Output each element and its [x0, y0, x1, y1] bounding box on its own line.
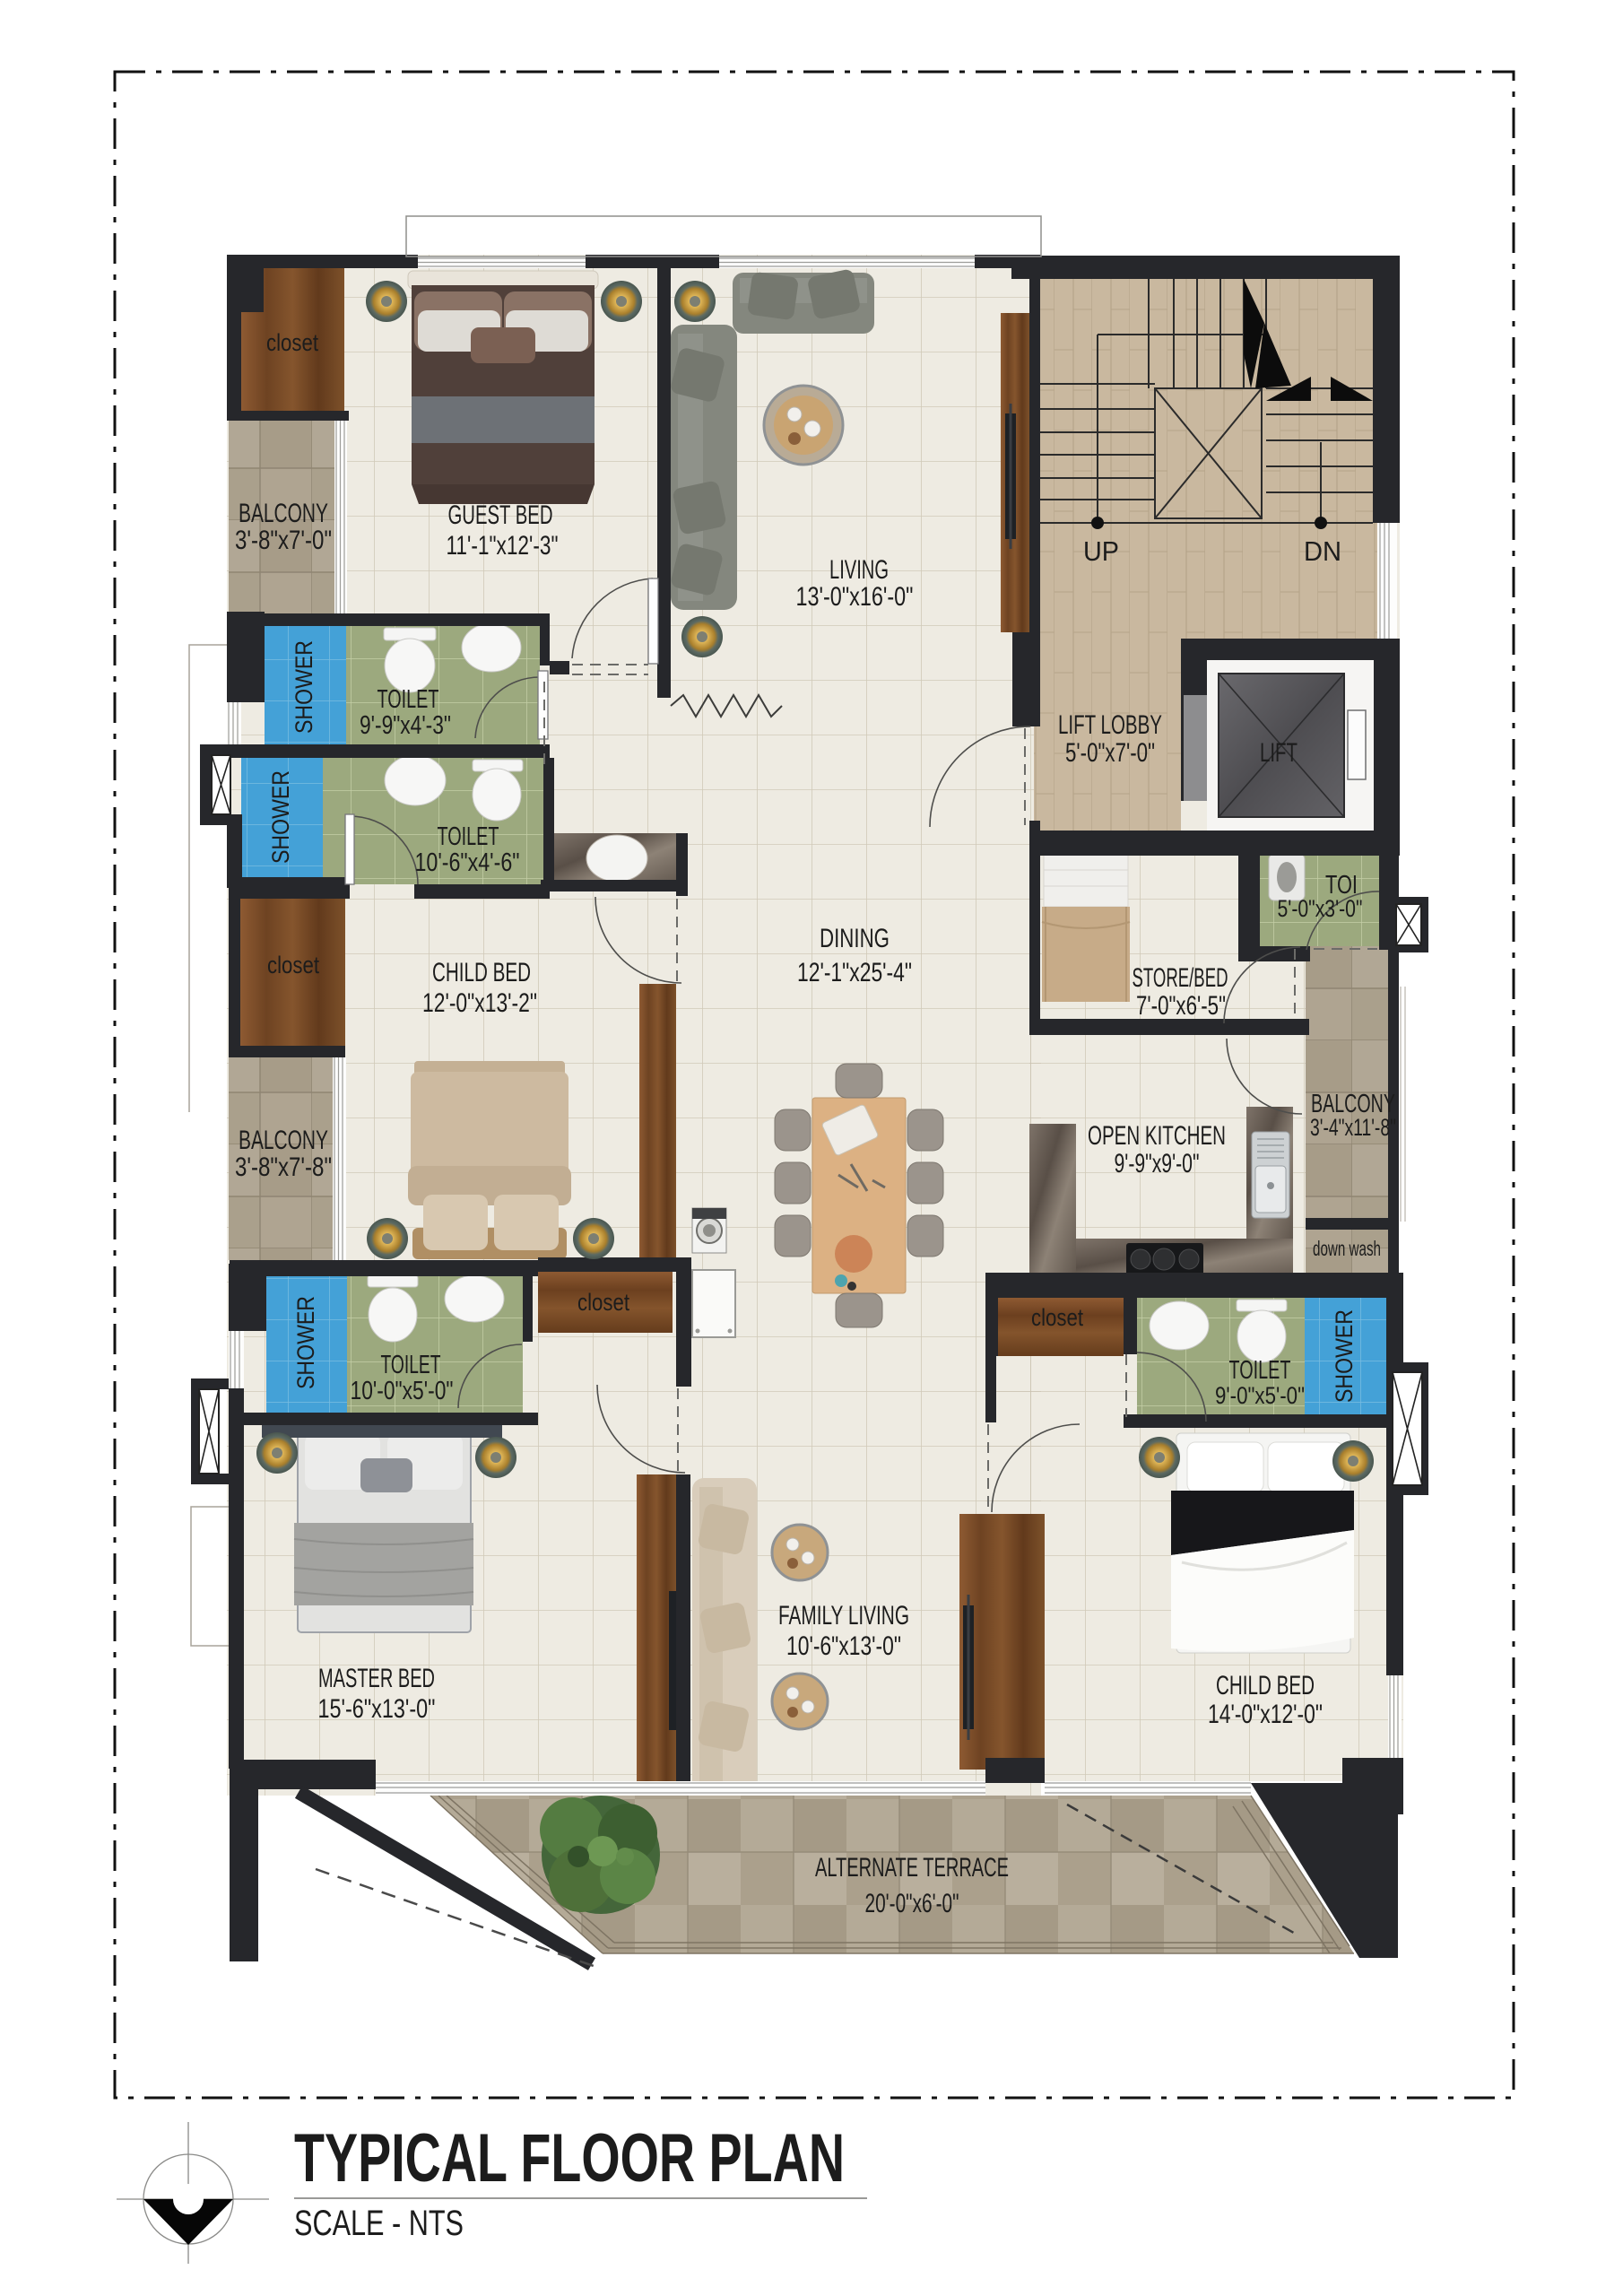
svg-text:5'-0"x7'-0": 5'-0"x7'-0" — [1065, 738, 1155, 768]
svg-text:11'-1"x12'-3": 11'-1"x12'-3" — [447, 531, 559, 561]
svg-text:BALCONY: BALCONY — [239, 499, 328, 528]
svg-text:3'-8"x7'-8": 3'-8"x7'-8" — [235, 1152, 332, 1182]
svg-text:13'-0"x16'-0": 13'-0"x16'-0" — [796, 582, 914, 612]
svg-text:FAMILY LIVING: FAMILY LIVING — [778, 1601, 909, 1631]
svg-text:GUEST BED: GUEST BED — [448, 500, 553, 530]
svg-text:STORE/BED: STORE/BED — [1133, 963, 1228, 993]
svg-text:DN: DN — [1304, 535, 1341, 567]
svg-text:LIFT LOBBY: LIFT LOBBY — [1058, 710, 1162, 740]
svg-text:12'-0"x13'-2": 12'-0"x13'-2" — [422, 988, 537, 1018]
svg-text:down wash: down wash — [1313, 1237, 1381, 1260]
svg-text:9'-0"x5'-0": 9'-0"x5'-0" — [1215, 1382, 1305, 1409]
svg-text:TOILET: TOILET — [1229, 1356, 1291, 1385]
svg-text:14'-0"x12'-0": 14'-0"x12'-0" — [1208, 1700, 1323, 1729]
svg-text:SCALE - NTS: SCALE - NTS — [294, 2204, 464, 2243]
svg-text:closet: closet — [267, 952, 319, 978]
svg-text:DINING: DINING — [820, 924, 890, 953]
svg-text:SHOWER: SHOWER — [267, 770, 294, 864]
svg-text:BALCONY: BALCONY — [239, 1126, 328, 1155]
svg-text:SHOWER: SHOWER — [291, 640, 317, 734]
svg-text:MASTER BED: MASTER BED — [318, 1664, 435, 1693]
svg-text:LIVING: LIVING — [829, 555, 889, 585]
svg-text:20'-0"x6'-0": 20'-0"x6'-0" — [865, 1889, 959, 1918]
svg-text:9'-9"x4'-3": 9'-9"x4'-3" — [360, 711, 451, 740]
svg-text:15'-6"x13'-0": 15'-6"x13'-0" — [318, 1694, 436, 1724]
svg-text:closet: closet — [577, 1289, 629, 1316]
svg-text:10'-6"x13'-0": 10'-6"x13'-0" — [786, 1631, 901, 1661]
svg-text:7'-0"x6'-5": 7'-0"x6'-5" — [1136, 991, 1226, 1021]
svg-text:ALTERNATE TERRACE: ALTERNATE TERRACE — [815, 1853, 1009, 1883]
svg-text:3'-4"x11'-8": 3'-4"x11'-8" — [1310, 1114, 1396, 1141]
svg-text:OPEN KITCHEN: OPEN KITCHEN — [1088, 1121, 1226, 1151]
svg-text:3'-8"x7'-0": 3'-8"x7'-0" — [235, 526, 332, 555]
svg-text:10'-0"x5'-0": 10'-0"x5'-0" — [351, 1377, 454, 1405]
svg-text:CHILD BED: CHILD BED — [432, 958, 531, 987]
svg-text:UP: UP — [1083, 535, 1119, 567]
svg-text:10'-6"x4'-6": 10'-6"x4'-6" — [415, 848, 520, 877]
svg-text:TOILET: TOILET — [378, 685, 439, 714]
svg-text:closet: closet — [266, 329, 318, 356]
svg-text:CHILD BED: CHILD BED — [1216, 1671, 1315, 1700]
svg-text:5'-0"x3'-0": 5'-0"x3'-0" — [1278, 895, 1363, 922]
svg-text:TYPICAL FLOOR PLAN: TYPICAL FLOOR PLAN — [294, 2120, 845, 2196]
svg-text:TOILET: TOILET — [438, 822, 499, 851]
svg-text:LIFT: LIFT — [1260, 738, 1298, 768]
svg-text:9'-9"x9'-0": 9'-9"x9'-0" — [1115, 1149, 1200, 1178]
svg-text:12'-1"x25'-4": 12'-1"x25'-4" — [797, 958, 912, 987]
svg-text:SHOWER: SHOWER — [1331, 1309, 1358, 1403]
svg-text:SHOWER: SHOWER — [292, 1296, 319, 1389]
svg-text:TOILET: TOILET — [381, 1351, 441, 1379]
svg-text:closet: closet — [1031, 1304, 1083, 1331]
